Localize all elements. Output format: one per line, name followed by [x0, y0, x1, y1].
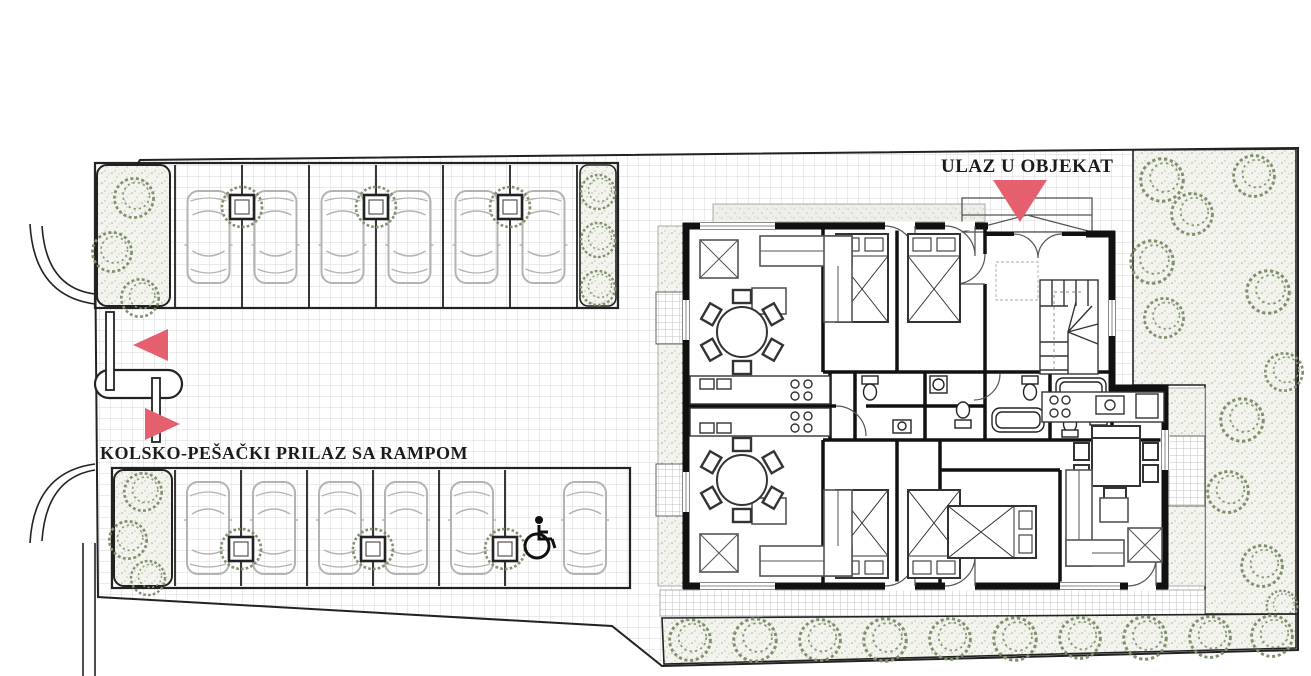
terrace-east: [1168, 436, 1205, 506]
driveway-curbs: [30, 224, 95, 676]
ramp-barrier: [106, 312, 114, 390]
walkway-south: [660, 590, 1205, 616]
kitchen-right: [1042, 392, 1164, 422]
site-plan-svg: KOLSKO-PEŠAČKI PRILAZ SA RAMPOM: [0, 0, 1311, 676]
bed-icon: [908, 234, 960, 322]
bed-icon: [948, 506, 1036, 558]
gravel-strip-north: [713, 204, 985, 222]
planting-bed: [97, 165, 170, 306]
kitchen-bottom: [690, 408, 830, 436]
green-strip-bottom: [662, 614, 1296, 664]
entrance-label: ULAZ U OBJEKAT: [941, 156, 1113, 177]
kitchen-top: [690, 376, 830, 404]
planting-strip-west: [658, 226, 684, 586]
access-label: KOLSKO-PEŠAČKI PRILAZ SA RAMPOM: [100, 442, 468, 463]
site-plan-page: KOLSKO-PEŠAČKI PRILAZ SA RAMPOM: [0, 0, 1311, 676]
